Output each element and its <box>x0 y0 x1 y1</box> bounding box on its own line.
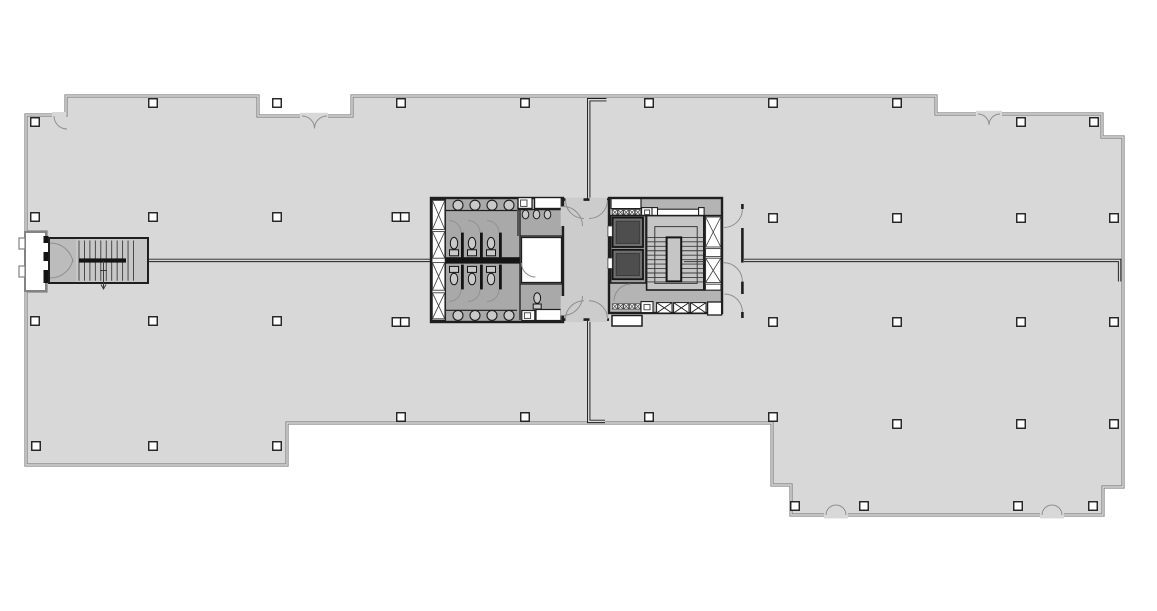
fixture-box <box>522 311 535 321</box>
lavatory <box>470 310 480 320</box>
door-gap <box>1040 512 1064 519</box>
elevator-door-notch <box>608 226 612 237</box>
toilet-bowl <box>450 273 457 285</box>
column <box>1110 214 1119 223</box>
column <box>31 118 40 127</box>
column <box>273 213 282 222</box>
toilet-tank <box>468 250 477 256</box>
spandrel-beam <box>655 209 702 215</box>
shaft-box <box>706 284 721 290</box>
urinal <box>544 210 551 219</box>
stall-partition <box>461 265 464 290</box>
toilet-bowl <box>487 273 494 285</box>
column <box>273 442 282 451</box>
plumbing-wall <box>445 257 520 263</box>
elevator-cab-inner <box>616 221 639 243</box>
sw-closet <box>612 316 642 327</box>
door-gap <box>561 296 566 316</box>
wall-stub <box>44 270 49 283</box>
toilet-bowl <box>450 237 457 249</box>
column <box>149 442 158 451</box>
column <box>1017 214 1026 223</box>
column <box>401 318 410 327</box>
column <box>273 317 282 326</box>
column <box>32 442 41 451</box>
column <box>149 99 158 108</box>
lavatory <box>504 310 514 320</box>
elevator-lobby <box>564 199 609 320</box>
lavatory <box>487 310 497 320</box>
stair-west-rail <box>79 258 126 262</box>
stair-west-recess <box>25 232 46 291</box>
column <box>645 99 654 108</box>
floor-plan-svg <box>0 0 1157 611</box>
column <box>392 213 401 222</box>
column <box>645 413 654 422</box>
lavatory <box>504 200 514 210</box>
stair-newel <box>667 237 682 281</box>
toilet-tank <box>468 266 477 272</box>
toilet-bowl <box>468 237 475 249</box>
recess-step <box>19 266 25 277</box>
column <box>769 318 778 327</box>
column <box>149 213 158 222</box>
urinal <box>522 210 529 219</box>
column <box>1090 118 1099 127</box>
elevator-cab-inner <box>616 253 639 275</box>
column <box>1110 420 1119 429</box>
stall-partition <box>499 233 502 258</box>
stall-partition <box>480 233 483 258</box>
stall-partition <box>480 265 483 290</box>
counter-box <box>536 310 561 321</box>
column <box>893 99 902 108</box>
toilet-tank <box>533 304 541 309</box>
toilet-tank <box>487 266 496 272</box>
door-gap <box>590 317 608 322</box>
column <box>31 317 40 326</box>
vent-closet <box>611 199 641 209</box>
column <box>769 413 778 422</box>
lavatory <box>487 200 497 210</box>
toilet-tank <box>450 250 459 256</box>
lavatory <box>453 200 463 210</box>
lavatory <box>470 200 480 210</box>
door-gap <box>566 198 584 203</box>
column <box>1017 318 1026 327</box>
column <box>273 99 282 108</box>
door-gap <box>44 243 49 252</box>
column <box>392 318 401 327</box>
janitor-room <box>522 238 562 283</box>
column <box>397 413 406 422</box>
column <box>893 318 902 327</box>
counter-box <box>535 198 562 209</box>
stair-west-vestibule <box>50 239 76 282</box>
column <box>521 99 530 108</box>
column <box>1110 318 1119 327</box>
toilet-bowl <box>487 237 494 249</box>
column <box>1017 118 1026 127</box>
lavatory <box>453 310 463 320</box>
column <box>1017 420 1026 429</box>
column <box>893 214 902 223</box>
column <box>860 502 869 511</box>
floor-plan <box>0 0 1157 611</box>
column <box>1014 502 1023 511</box>
recess-step <box>19 238 25 249</box>
column <box>769 214 778 223</box>
column <box>31 213 40 222</box>
wall-stub <box>44 236 49 243</box>
utility-room <box>708 302 722 315</box>
toilet-tank <box>450 266 459 272</box>
column <box>893 420 902 429</box>
column <box>149 317 158 326</box>
stall-partition <box>499 265 502 290</box>
door-gap <box>590 198 608 203</box>
wall-stub <box>44 252 49 261</box>
column <box>397 99 406 108</box>
urinal <box>533 210 540 219</box>
junction-box <box>641 302 653 313</box>
toilet-bowl <box>534 293 541 304</box>
door-gap <box>44 261 49 270</box>
shaft-box <box>706 249 721 257</box>
stall-partition <box>461 233 464 258</box>
door-gap <box>566 317 584 322</box>
door-gap <box>824 512 848 519</box>
column <box>521 413 530 422</box>
column <box>791 502 800 511</box>
toilet-bowl <box>468 273 475 285</box>
door-gap <box>561 207 566 227</box>
elevator-door-notch <box>608 258 612 269</box>
column <box>401 213 410 222</box>
column <box>1089 502 1098 511</box>
toilet-tank <box>487 250 496 256</box>
column <box>769 99 778 108</box>
